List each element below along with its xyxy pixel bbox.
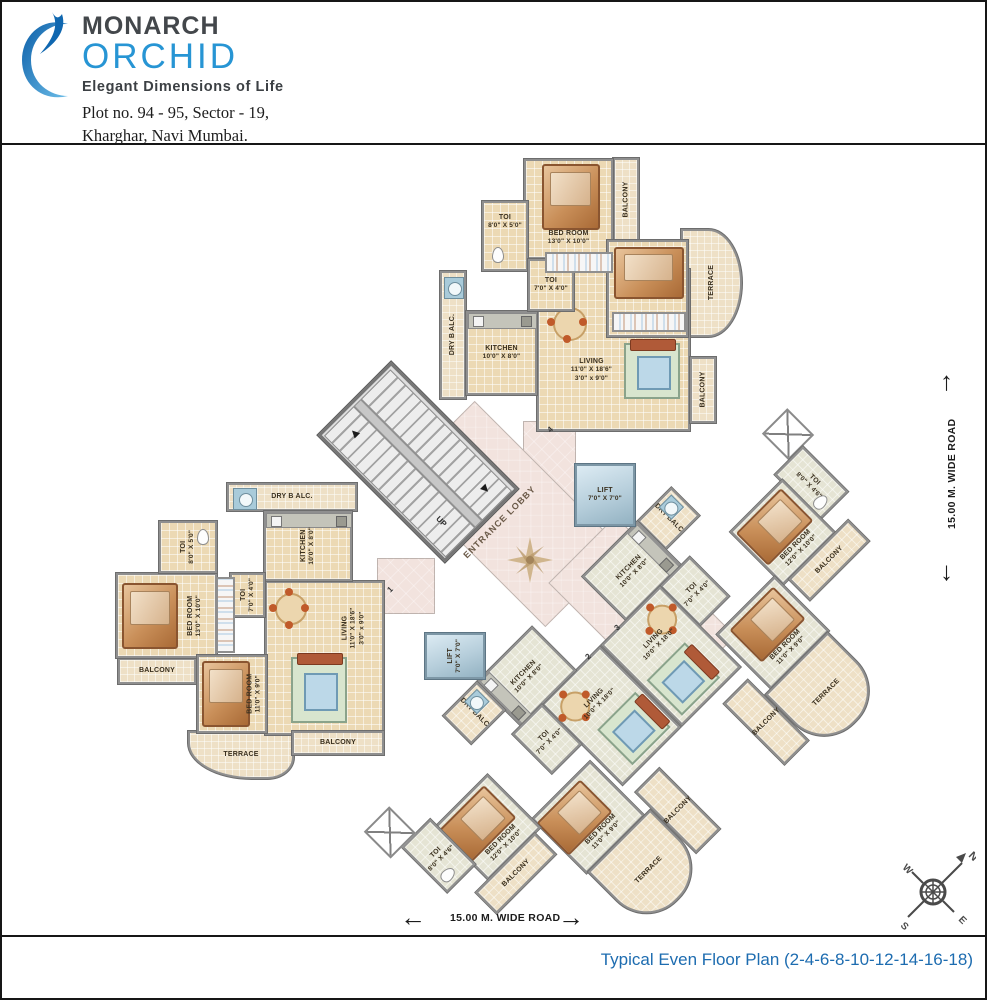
room-balcony-left: BALCONY [118,658,196,684]
dining-table-icon [275,593,307,625]
address: Plot no. 94 - 95, Sector - 19, Kharghar,… [82,101,284,147]
wardrobe-icon [545,252,613,273]
room-balcony2-left: BALCONY [292,731,384,755]
lift-label: LIFT [588,486,622,495]
svg-text:W: W [900,862,915,877]
washing-machine-icon [444,277,464,299]
brand-block: MONARCH ORCHID Elegant Dimensions of Lif… [82,14,284,147]
room-dry-balcony-top: DRY B ALC. [440,271,466,399]
room-bedroom-13x10-top: BED ROOM13'0" X 10'0" [524,159,613,259]
svg-text:E: E [956,914,969,927]
bed-icon [542,164,600,230]
lift-1: LIFT7'0" X 7'0" [575,464,635,526]
logo-swoosh [40,12,63,54]
road-arrow-left-icon: ← [400,904,426,930]
toilet-icon [438,865,458,885]
logo-crescent [22,22,68,97]
dining-table-icon [553,307,587,341]
toilet-icon [492,247,504,263]
lift-2: LIFT7'0" X 7'0" [425,633,485,679]
room-terrace-top: TERRACE [681,229,742,337]
room-kitchen-left: KITCHEN10'0" X 8'0" [264,511,352,581]
compass-rose-icon: N W S E [890,844,976,932]
brand-orchid: ORCHID [82,39,284,76]
room-toilet-8x5-left: TOI8'0" X 5'0" [159,521,217,573]
brand-tagline: Elegant Dimensions of Life [82,79,284,95]
room-toilet-7x4-left: TOI7'0" X 4'0" [230,573,265,617]
wardrobe-icon [216,577,235,653]
road-arrow-down-icon: ↓ [940,558,953,584]
lift-dims: 7'0" X 7'0" [588,495,622,503]
sofa-set-icon [291,657,347,723]
room-balcony2-top: BALCONY [690,357,716,423]
address-line1: Plot no. 94 - 95, Sector - 19, [82,101,284,124]
bed-icon [614,247,684,299]
room-terrace-left: TERRACE [188,731,294,779]
road-label-right: 15.00 M. WIDE ROAD [946,439,958,529]
road-arrow-up-icon: ↑ [940,368,953,394]
svg-text:N: N [966,850,976,864]
road-label-bottom: 15.00 M. WIDE ROAD [450,912,560,924]
sofa-set-icon [624,343,680,399]
room-dry-balcony-left: DRY B ALC. [227,483,357,511]
plan-caption: Typical Even Floor Plan (2-4-6-8-10-12-1… [601,950,973,970]
room-bedroom-13x10-left: BED ROOM13'0" X 10'0" [116,573,217,658]
room-kitchen-top: KITCHEN10'0" X 8'0" [466,311,537,395]
floor-plan-page: MONARCH ORCHID Elegant Dimensions of Lif… [0,0,987,1000]
lobby-compass-star-icon [507,537,553,583]
kitchen-counter-icon [266,513,352,528]
washing-machine-icon [233,488,257,510]
room-bedroom-11x9-left: BED ROOM11'0" X 9'0" [197,655,267,733]
toilet-icon [197,529,209,545]
brand-monarch: MONARCH [82,14,284,39]
room-bedroom-11x9-top: BED ROOM11'0" X 9'0" [607,240,688,337]
road-arrow-right-icon: → [558,904,584,930]
svg-text:S: S [898,920,911,932]
kitchen-counter-icon [468,313,537,329]
header: MONARCH ORCHID Elegant Dimensions of Lif… [2,2,985,145]
bed-icon [202,661,250,727]
footer-divider [2,935,985,937]
wardrobe-icon [612,312,686,332]
lift-dims: 7'0" X 7'0" [455,639,463,673]
bed-icon [122,583,178,649]
monarch-logo-icon [18,10,80,107]
room-balcony-top: BALCONY [613,158,639,242]
address-line2: Kharghar, Navi Mumbai. [82,124,284,147]
room-toilet-8x5-top: TOI8'0" X 5'0" [482,201,528,271]
room-living-left: LIVING11'0" X 18'6"3'0" x 9'0" [265,581,384,735]
lift-label: LIFT [446,639,455,673]
